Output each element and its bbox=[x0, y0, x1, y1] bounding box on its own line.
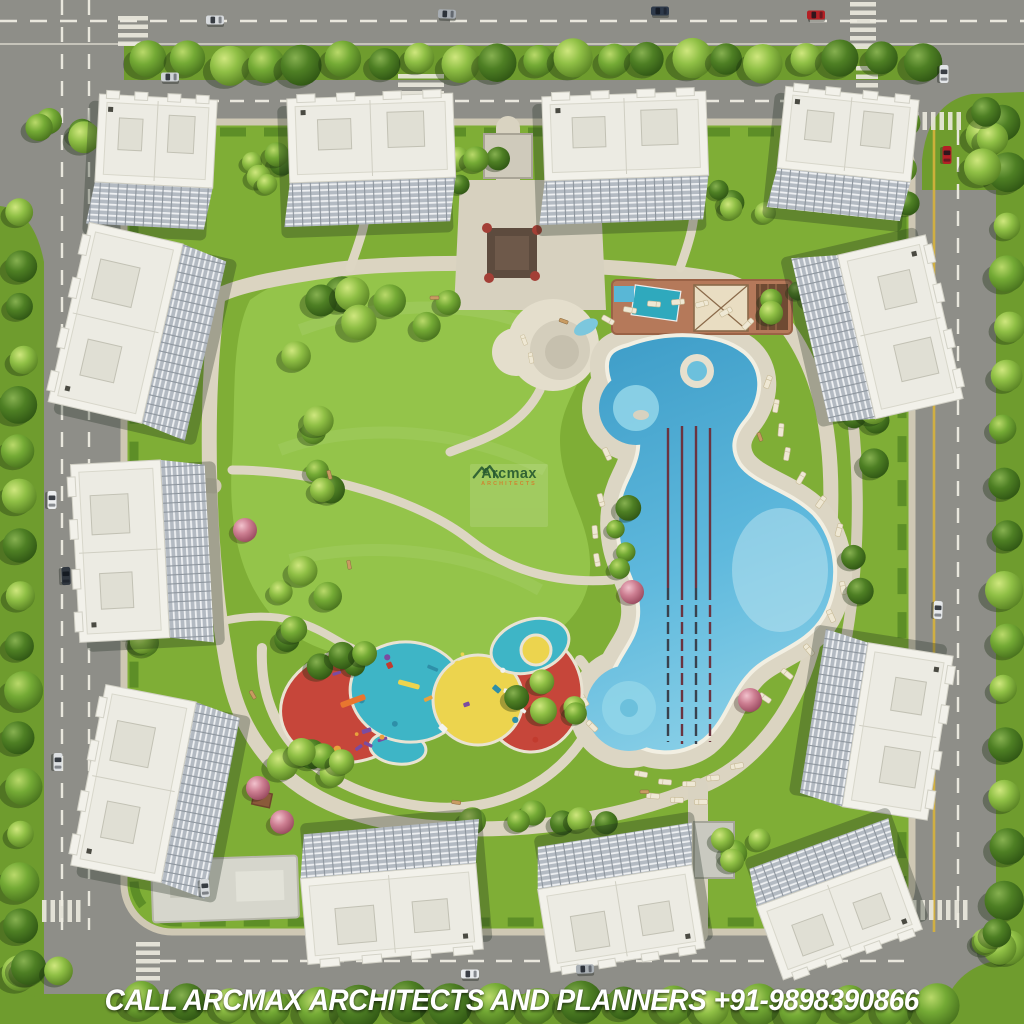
sun-lounger bbox=[778, 423, 784, 436]
apartment-tower bbox=[529, 811, 715, 976]
sun-lounger bbox=[683, 781, 696, 786]
apartment-tower bbox=[296, 808, 494, 969]
contact-text: CALL ARCMAX ARCHITECTS AND PLANNERS +91-… bbox=[105, 984, 919, 1018]
contact-banner: CALL ARCMAX ARCHITECTS AND PLANNERS +91-… bbox=[0, 984, 1024, 1018]
arcmax-watermark: Arcmax ARCHITECTS bbox=[470, 464, 548, 527]
sun-lounger bbox=[646, 793, 659, 799]
car bbox=[59, 567, 71, 585]
cabana bbox=[694, 285, 748, 331]
apartment-tower bbox=[788, 624, 959, 821]
sun-lounger bbox=[670, 797, 683, 803]
apartment-tower bbox=[82, 89, 217, 241]
car bbox=[461, 970, 479, 982]
car bbox=[937, 65, 949, 83]
watermark-subtitle: ARCHITECTS bbox=[470, 481, 548, 488]
car bbox=[931, 601, 943, 619]
car bbox=[940, 146, 952, 164]
sun-lounger bbox=[658, 779, 671, 785]
tower-facade bbox=[283, 177, 457, 227]
car bbox=[576, 964, 594, 976]
car bbox=[45, 491, 57, 509]
car bbox=[161, 73, 179, 85]
car bbox=[807, 11, 825, 23]
sun-lounger bbox=[647, 301, 660, 307]
park-bench bbox=[640, 790, 649, 794]
apartment-tower bbox=[532, 87, 711, 236]
sun-lounger bbox=[706, 775, 719, 781]
plunge-pool bbox=[614, 286, 634, 302]
sun-lounger bbox=[592, 525, 598, 538]
tower-facade bbox=[86, 182, 213, 230]
apartment-tower bbox=[66, 457, 225, 653]
car bbox=[651, 7, 669, 19]
tower-facade bbox=[538, 175, 710, 225]
park-bench bbox=[430, 296, 439, 300]
car bbox=[51, 753, 63, 771]
arcmax-logo-icon bbox=[470, 464, 506, 480]
car bbox=[197, 879, 210, 898]
sun-lounger bbox=[695, 799, 708, 804]
apartment-tower bbox=[277, 89, 458, 238]
car bbox=[438, 9, 456, 21]
car bbox=[206, 16, 224, 28]
apartment-tower bbox=[762, 81, 920, 232]
sun-lounger bbox=[671, 299, 684, 305]
aerial-masterplan-render: Arcmax ARCHITECTS CALL ARCMAX ARCHITECTS… bbox=[0, 0, 1024, 1024]
